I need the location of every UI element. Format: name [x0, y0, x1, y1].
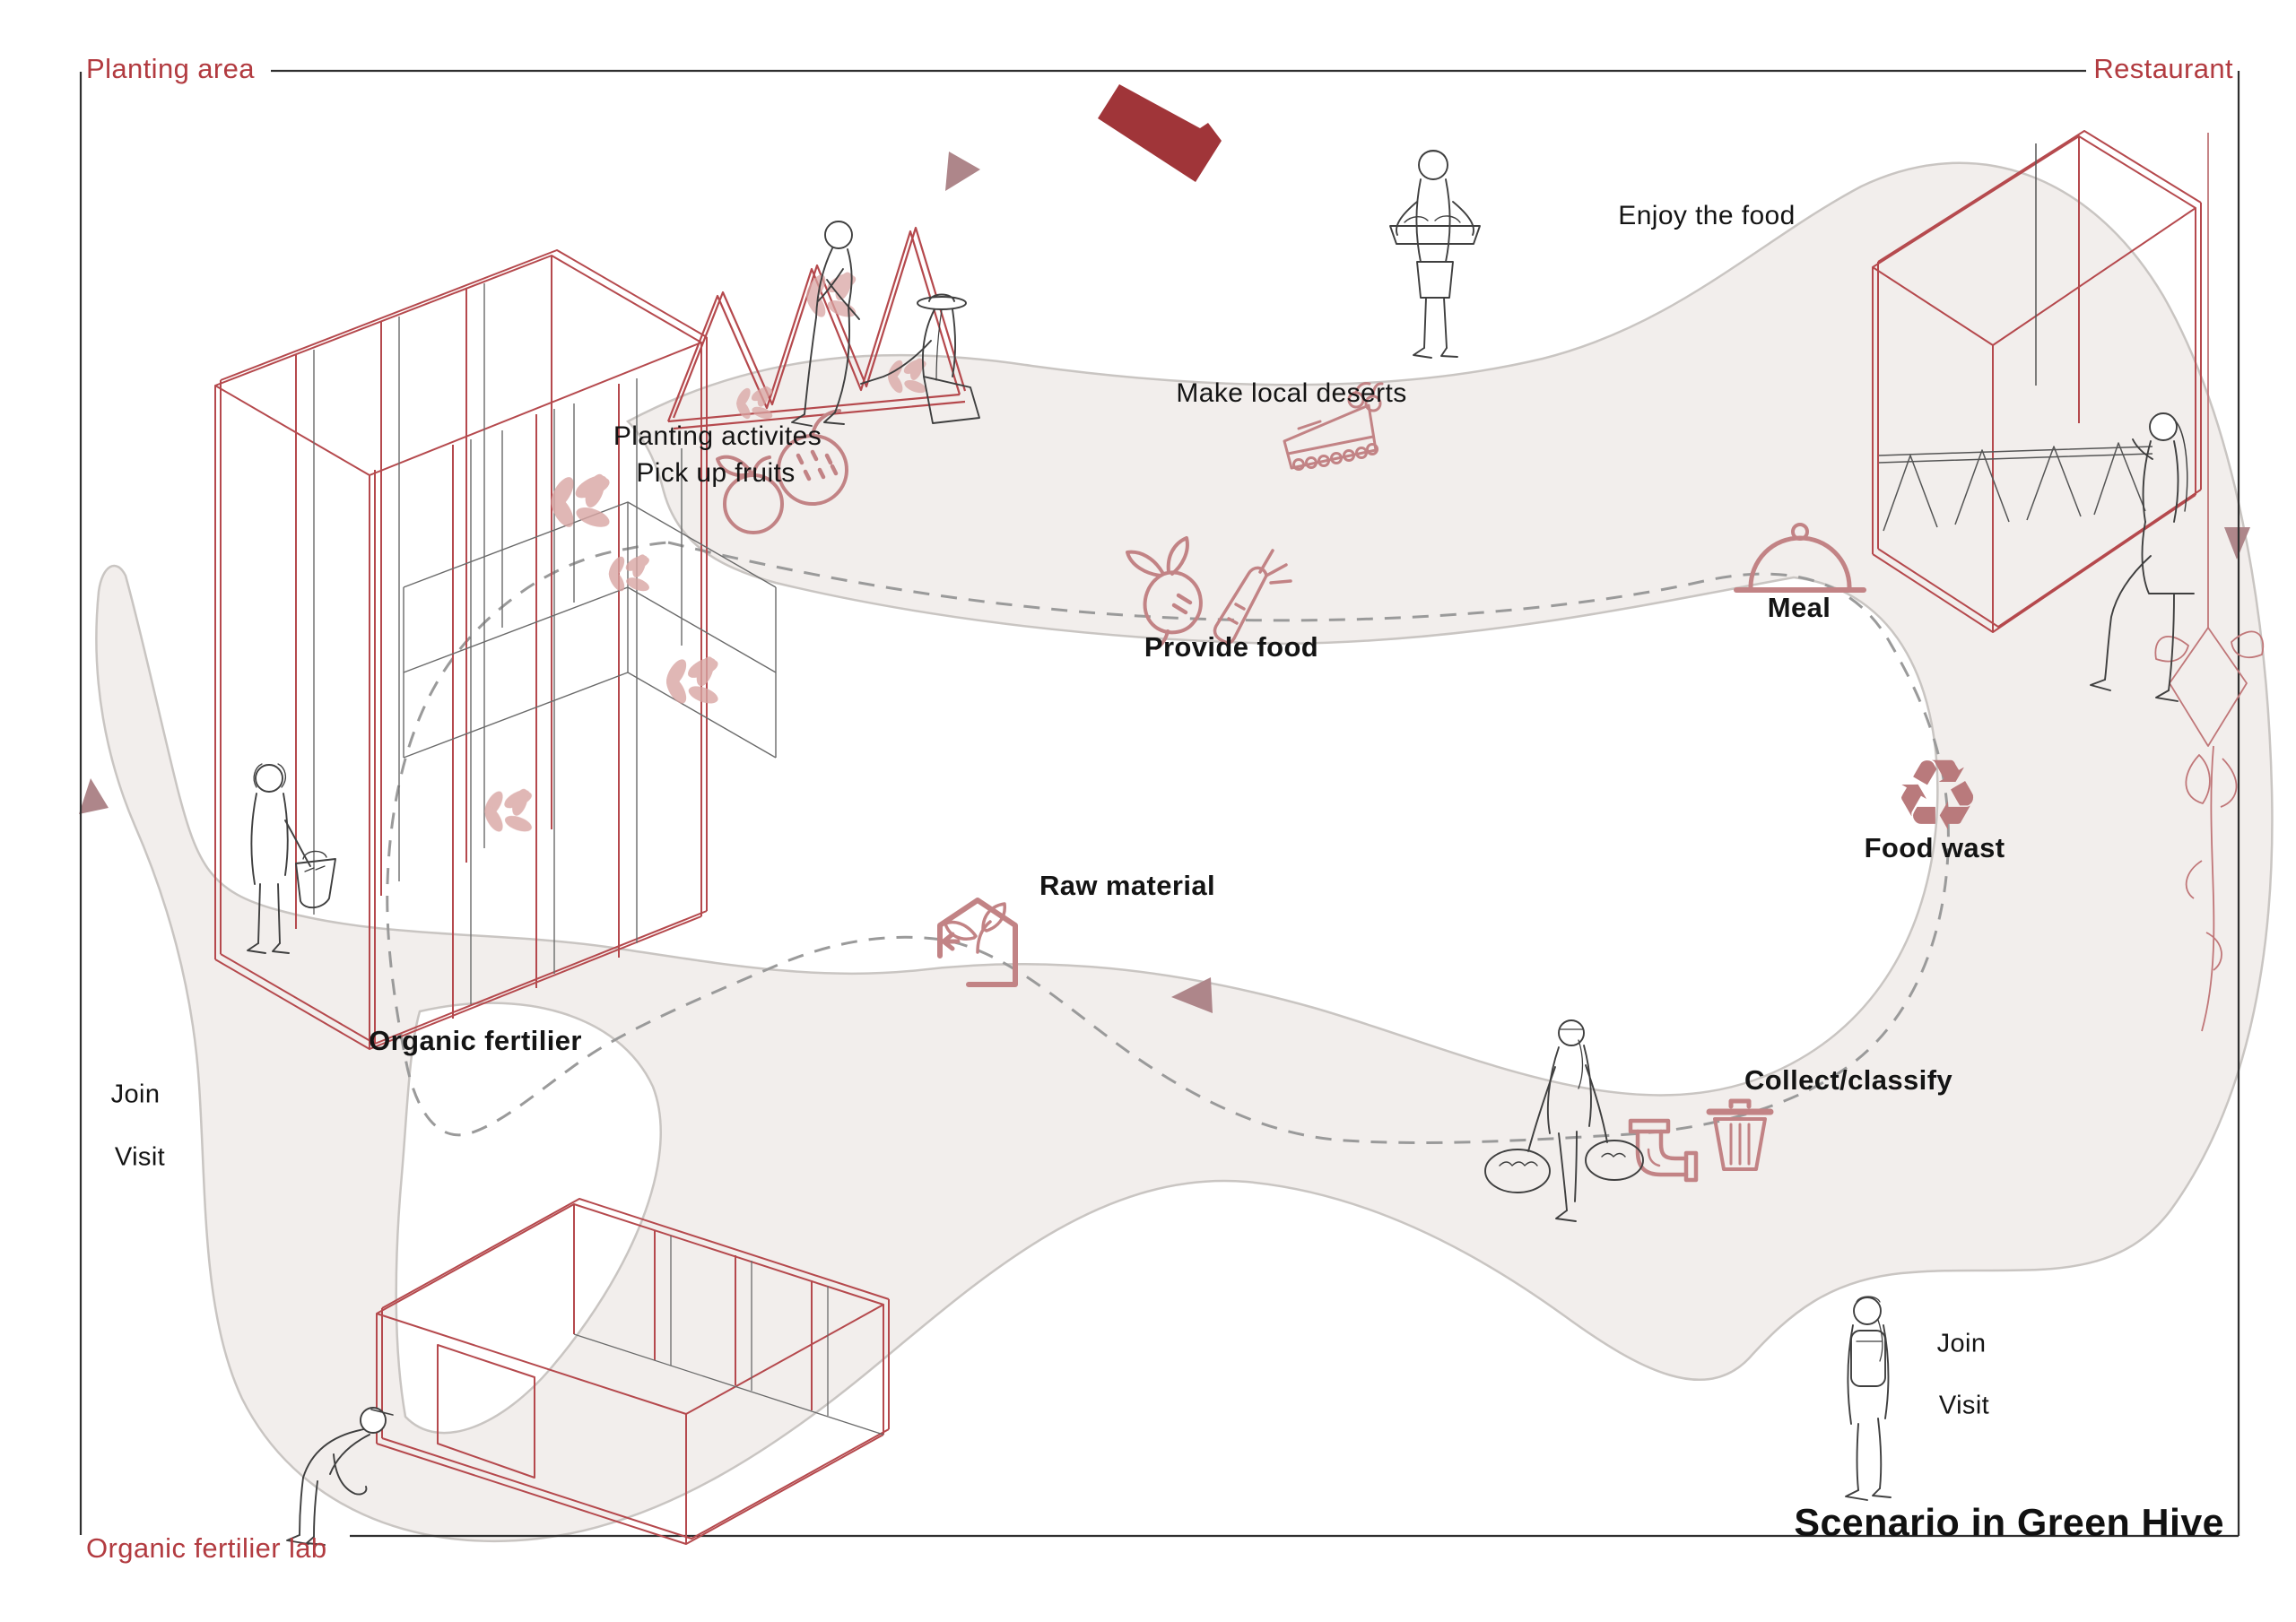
label-make-local-deserts: Make local deserts	[1176, 378, 1406, 409]
label-planting-activities: Planting activites	[613, 421, 822, 452]
page-title: Scenario in Green Hive	[1794, 1502, 2224, 1546]
label-visit-left: Visit	[115, 1143, 165, 1173]
label-join-right: Join	[1937, 1330, 1987, 1359]
label-pick-up-fruits: Pick up fruits	[636, 458, 795, 489]
figure-visitor-backpack	[1846, 1297, 1891, 1500]
arrow-up-right-icon	[945, 152, 980, 191]
label-collect-classify: Collect/classify	[1744, 1064, 1952, 1097]
diagram-canvas: ♻	[0, 0, 2296, 1622]
label-join-left: Join	[111, 1080, 161, 1110]
label-organic-fertilier: Organic fertilier	[369, 1025, 582, 1057]
label-food-wast: Food wast	[1865, 832, 2005, 864]
label-meal: Meal	[1768, 592, 1831, 624]
label-restaurant: Restaurant	[2093, 53, 2233, 85]
figure-chef	[1390, 151, 1480, 358]
label-provide-food: Provide food	[1144, 631, 1318, 664]
label-raw-material: Raw material	[1039, 870, 1215, 902]
label-visit-right: Visit	[1939, 1392, 1989, 1421]
label-enjoy-the-food: Enjoy the food	[1618, 201, 1795, 231]
label-planting-area: Planting area	[86, 53, 255, 85]
logo-mark	[1098, 84, 1222, 182]
label-organic-fertilier-lab: Organic fertilier lab	[86, 1532, 327, 1565]
arrow-up-left-icon	[79, 778, 109, 814]
scenario-diagram: ♻	[0, 0, 2296, 1622]
